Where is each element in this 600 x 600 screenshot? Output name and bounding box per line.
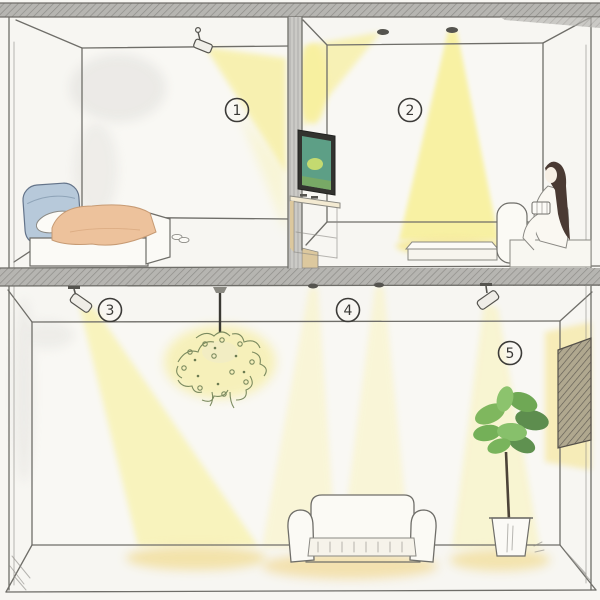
callout-5-number: 5 xyxy=(506,346,515,362)
downlight-icon-living-1 xyxy=(308,284,318,289)
callout-2-number: 2 xyxy=(406,103,415,119)
callout-3-number: 3 xyxy=(106,303,115,319)
scene-canvas: 1 xyxy=(0,0,600,600)
tv-console-side xyxy=(302,248,318,268)
lounge-wall-glow xyxy=(299,44,327,124)
callout-2: 2 xyxy=(399,99,422,122)
living-left-floor-glow xyxy=(126,546,266,570)
downlight-icon-left xyxy=(377,29,389,35)
two-storey-lighting-illustration: 1 xyxy=(0,0,600,600)
person-face xyxy=(545,167,557,183)
downlight-icon-right xyxy=(446,27,458,33)
callout-4: 4 xyxy=(337,299,360,322)
callout-1: 1 xyxy=(226,99,249,122)
coffee-table xyxy=(406,242,498,260)
callout-4-number: 4 xyxy=(344,303,353,319)
wall-art xyxy=(558,338,591,448)
callout-5: 5 xyxy=(499,342,522,365)
downlight-icon-living-2 xyxy=(374,283,384,288)
sofa-back xyxy=(311,495,414,540)
callout-3: 3 xyxy=(99,299,122,322)
callout-1-number: 1 xyxy=(233,103,242,119)
remote-control-2 xyxy=(311,196,318,199)
remote-control xyxy=(300,194,307,197)
sofa-seat xyxy=(308,538,416,556)
tv xyxy=(298,130,335,195)
mid-floor-slab xyxy=(0,266,600,286)
